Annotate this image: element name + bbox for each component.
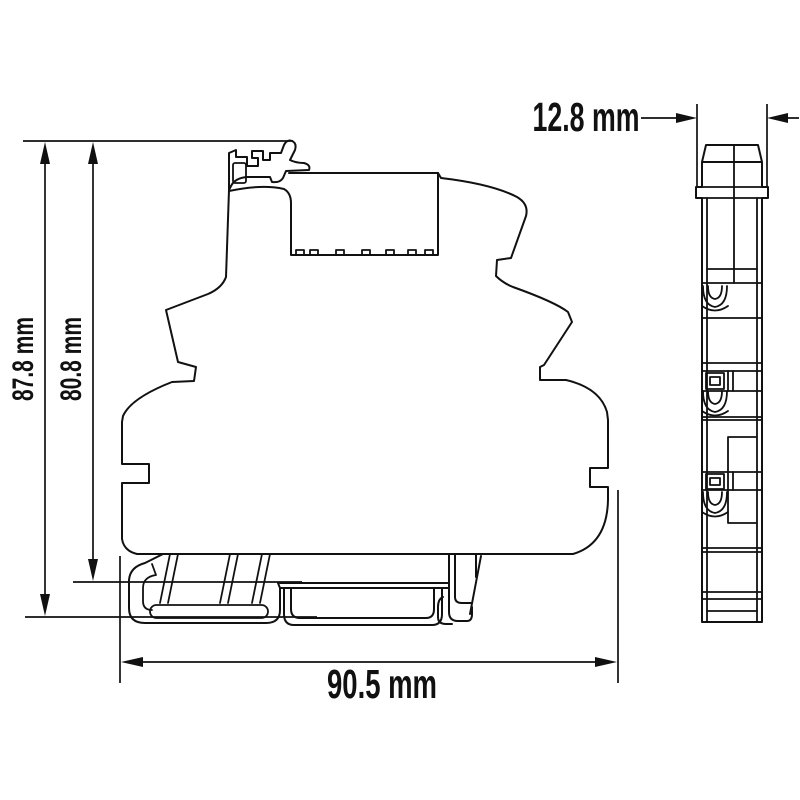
dim-label-overall-depth: 12.8 mm <box>533 94 640 140</box>
dim-label-overall-width: 90.5 mm <box>327 661 437 707</box>
clip-left-springs <box>160 554 270 603</box>
terminal-screw-1 <box>706 373 724 389</box>
side-wall-lines <box>707 145 757 622</box>
dim-label-rail-height: 80.8 mm <box>55 317 88 401</box>
dimension-drawing-page: 87.8 mm 80.8 mm 90.5 mm 12.8 mm <box>0 0 800 800</box>
side-section-lines <box>702 187 762 611</box>
wire-clamp-3 <box>702 492 728 517</box>
wire-clamp-2 <box>702 391 728 416</box>
dimension-lines <box>45 118 799 662</box>
clip-left-hook <box>143 564 156 610</box>
side-view <box>696 145 768 622</box>
clip-left-slot <box>150 605 268 618</box>
wire-clamp-1 <box>702 286 728 311</box>
housing-outline <box>122 173 608 554</box>
technical-dimension-drawing: 87.8 mm 80.8 mm 90.5 mm 12.8 mm <box>0 0 800 800</box>
extension-lines <box>23 104 767 683</box>
din-rail-channel <box>280 583 449 625</box>
dimension-annotations: 87.8 mm 80.8 mm 90.5 mm 12.8 mm <box>7 94 799 707</box>
dim-label-overall-height: 87.8 mm <box>7 317 40 401</box>
front-view <box>122 141 608 626</box>
relay-block <box>229 173 438 255</box>
terminal-screw-2 <box>706 474 724 489</box>
